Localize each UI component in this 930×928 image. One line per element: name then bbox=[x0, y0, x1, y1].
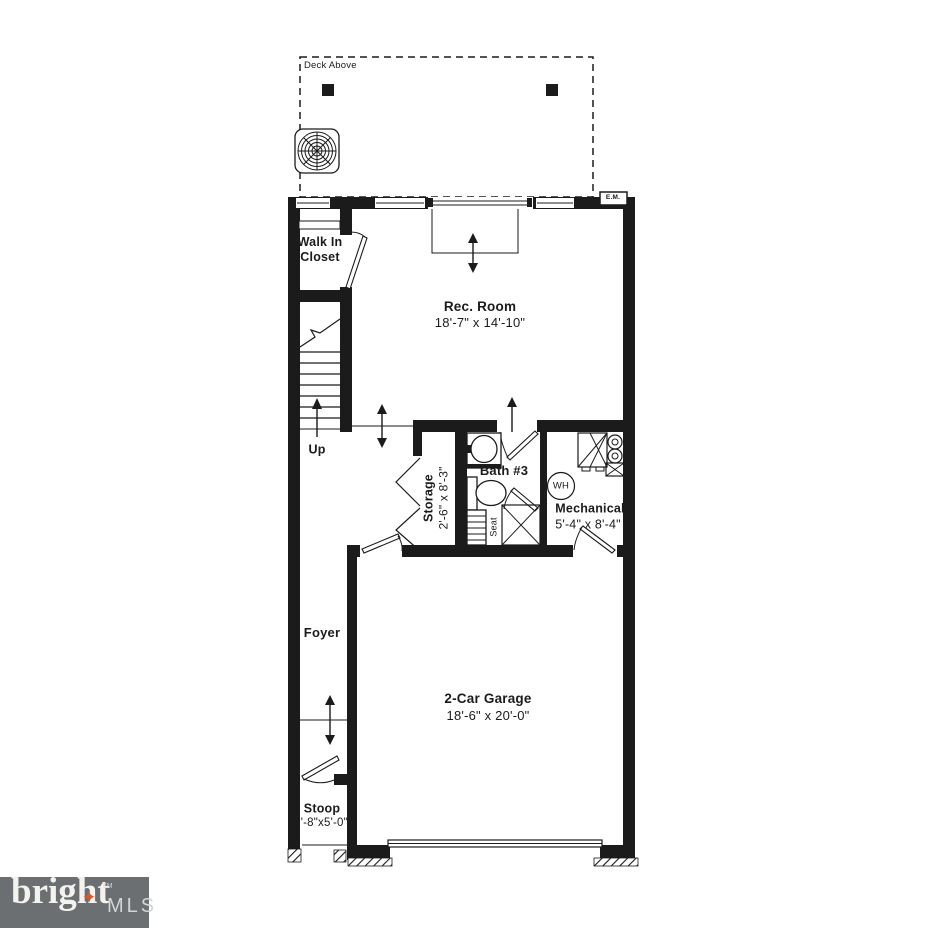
logo-star-icon: ✦ bbox=[82, 889, 96, 906]
foundation-hatching bbox=[288, 849, 638, 866]
window bbox=[533, 198, 577, 208]
stoop-door bbox=[302, 756, 339, 783]
mechanical-dims: 5'-4" x 8'-4" bbox=[555, 518, 621, 533]
rec-room-label: Rec. Room bbox=[444, 299, 516, 315]
window bbox=[372, 198, 428, 208]
rec-room-dims: 18'-7" x 14'-10" bbox=[435, 315, 525, 331]
closet-shelf bbox=[299, 221, 340, 229]
ac-condenser-icon bbox=[295, 129, 339, 173]
staircase bbox=[300, 319, 340, 437]
seat-label: Seat bbox=[489, 517, 500, 536]
brightmls-logo: bright ✦ TM MLS bbox=[0, 877, 149, 928]
bath-label: Bath #3 bbox=[480, 463, 528, 479]
deck-outline bbox=[300, 57, 593, 197]
toilet bbox=[467, 477, 506, 510]
garage-dims: 18'-6" x 20'-0" bbox=[447, 708, 530, 724]
sliding-door bbox=[428, 197, 533, 209]
stair-break-line bbox=[300, 319, 340, 347]
logo-trademark: TM bbox=[102, 883, 113, 890]
garage-entry-door bbox=[362, 534, 402, 553]
shower-door bbox=[504, 488, 538, 511]
mechanical-label: Mechanical bbox=[555, 502, 624, 517]
up-label: Up bbox=[308, 443, 325, 458]
foyer-label: Foyer bbox=[304, 625, 340, 641]
deck-post bbox=[546, 84, 558, 96]
storage-name: Storage bbox=[421, 466, 436, 529]
bath-door bbox=[500, 431, 538, 460]
deck-post bbox=[322, 84, 334, 96]
water-heater-label: WH bbox=[553, 480, 569, 491]
utility-pipes bbox=[606, 435, 624, 476]
floor-plan-page: Deck Above Walk In Closet Rec. Room 18'-… bbox=[0, 0, 930, 928]
garage-label: 2-Car Garage bbox=[444, 691, 531, 707]
shower-steps bbox=[467, 510, 486, 545]
storage-label: Storage 2'-6" x 8'-3" bbox=[421, 466, 450, 529]
stoop-dims: 3'-8"x5'-0" bbox=[294, 817, 348, 831]
garage-door bbox=[388, 840, 602, 847]
closet-label: Walk In Closet bbox=[285, 235, 355, 265]
stoop-label: Stoop bbox=[304, 802, 340, 817]
furnace bbox=[578, 433, 607, 471]
storage-dims: 2'-6" x 8'-3" bbox=[436, 466, 450, 529]
floor-plan-drawing bbox=[0, 0, 930, 928]
meter-label: E.M. bbox=[606, 194, 620, 202]
bathroom-fixtures bbox=[464, 433, 540, 545]
slider-landing bbox=[432, 209, 518, 253]
shower-pan bbox=[502, 505, 540, 545]
window bbox=[293, 198, 333, 208]
logo-suffix: MLS bbox=[107, 895, 157, 918]
deck-label: Deck Above bbox=[304, 60, 357, 71]
